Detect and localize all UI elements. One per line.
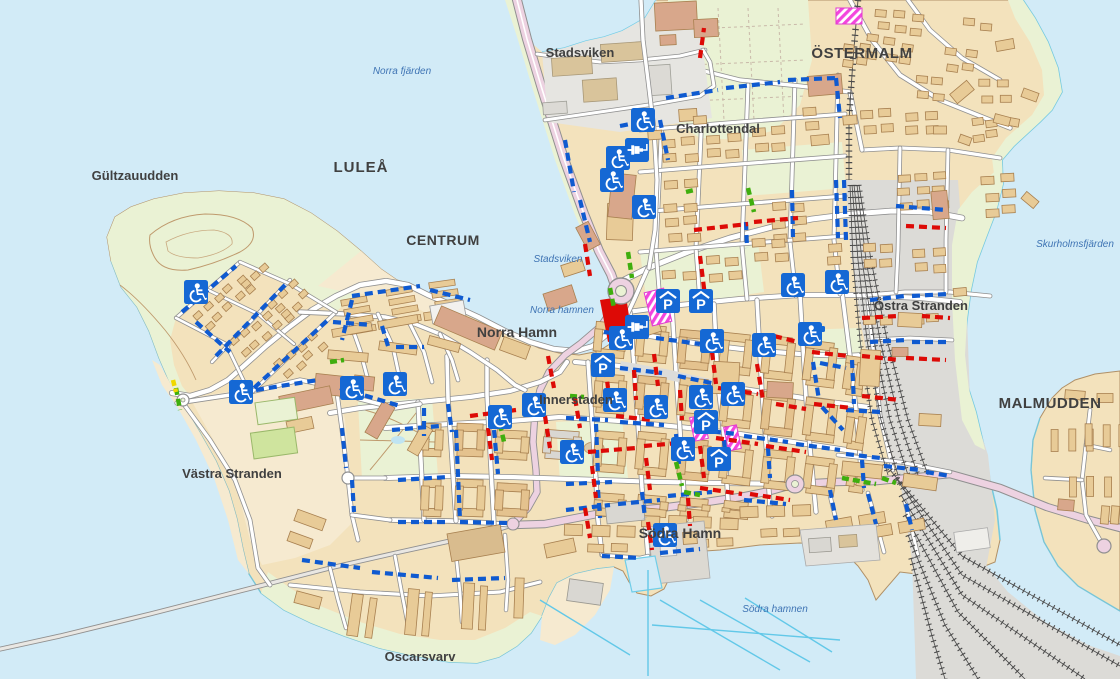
svg-text:Västra Stranden: Västra Stranden [182,466,282,481]
svg-text:ÖSTERMALM: ÖSTERMALM [811,45,912,62]
svg-text:Norra hamnen: Norra hamnen [530,305,594,316]
svg-text:Stadsviken: Stadsviken [546,45,615,60]
svg-text:P: P [714,456,724,472]
svg-text:P: P [598,362,608,378]
svg-text:Stadsviken: Stadsviken [534,254,583,265]
svg-text:P: P [663,298,673,314]
svg-text:Gültzauudden: Gültzauudden [92,168,179,183]
svg-text:P: P [701,419,711,435]
svg-text:Södra Hamn: Södra Hamn [639,525,721,541]
svg-text:Norra fjärden: Norra fjärden [373,66,432,77]
svg-text:LULEÅ: LULEÅ [334,159,389,176]
svg-text:Oscarsvarv: Oscarsvarv [385,649,457,664]
svg-text:CENTRUM: CENTRUM [406,232,480,248]
svg-text:Östra Stranden: Östra Stranden [874,298,968,313]
svg-text:Södra hamnen: Södra hamnen [742,604,808,615]
svg-text:P: P [696,298,706,314]
svg-text:Norra Hamn: Norra Hamn [477,324,557,340]
svg-text:MALMUDDEN: MALMUDDEN [999,395,1102,412]
svg-text:Charlottendal: Charlottendal [676,121,760,136]
svg-text:Skurholmsfjärden: Skurholmsfjärden [1036,239,1114,250]
svg-text:Innerstaden: Innerstaden [539,392,613,407]
